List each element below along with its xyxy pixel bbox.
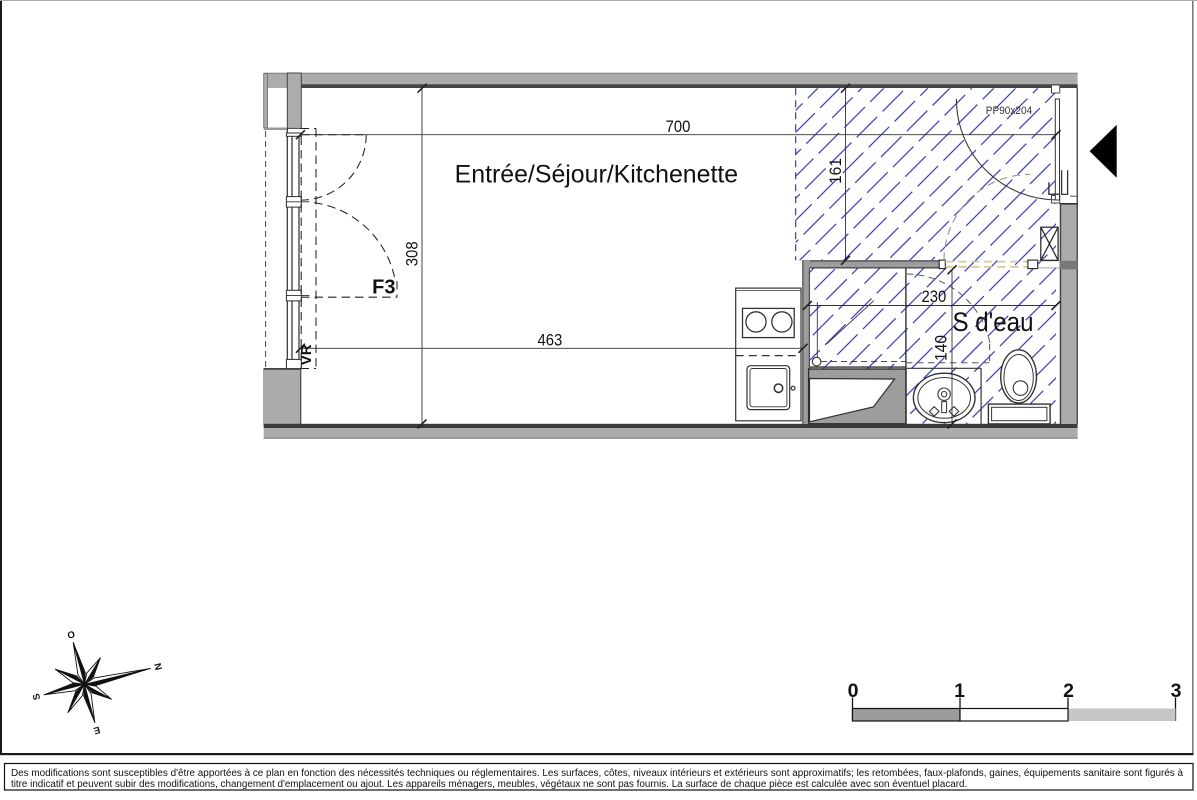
- svg-text:3: 3: [1171, 680, 1182, 702]
- svg-text:700: 700: [666, 118, 691, 136]
- svg-text:F3: F3: [372, 277, 395, 299]
- svg-text:Des modifications sont suscept: Des modifications sont susceptibles d'êt…: [11, 768, 1184, 779]
- svg-text:VR: VR: [298, 344, 315, 365]
- svg-text:1: 1: [954, 680, 965, 702]
- svg-text:463: 463: [538, 332, 563, 350]
- svg-text:PP90x204: PP90x204: [986, 105, 1033, 117]
- svg-text:161: 161: [827, 158, 845, 184]
- svg-text:230: 230: [922, 288, 947, 306]
- svg-text:2: 2: [1063, 680, 1074, 702]
- svg-text:titre indicatif et peuvent sub: titre indicatif et peuvent subir des mod…: [11, 779, 967, 790]
- svg-text:S d'eau: S d'eau: [953, 307, 1034, 337]
- svg-text:0: 0: [848, 680, 859, 702]
- svg-text:308: 308: [404, 241, 422, 266]
- svg-text:Entrée/Séjour/Kitchenette: Entrée/Séjour/Kitchenette: [455, 161, 739, 189]
- svg-text:140: 140: [933, 335, 951, 361]
